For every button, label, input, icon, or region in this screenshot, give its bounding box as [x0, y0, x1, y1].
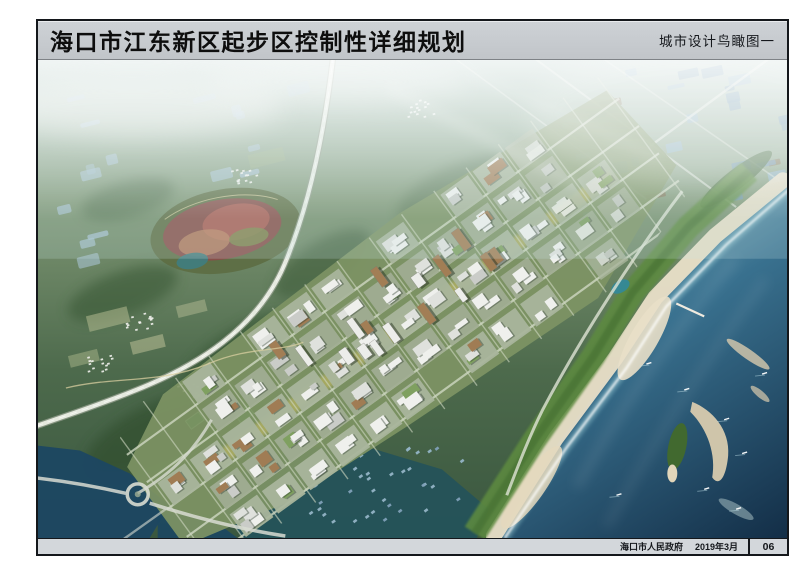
aerial-rendering [38, 60, 787, 538]
header-band: 海口市江东新区起步区控制性详细规划 城市设计鸟瞰图一 [38, 21, 787, 60]
publisher: 海口市人民政府 [620, 540, 683, 553]
page-number: 06 [748, 539, 787, 554]
atmosphere [38, 60, 787, 259]
plan-sheet: 海口市江东新区起步区控制性详细规划 城市设计鸟瞰图一 [36, 19, 789, 556]
aerial-view-svg [38, 60, 787, 538]
sheet-label: 城市设计鸟瞰图一 [659, 30, 775, 50]
publish-date: 2019年3月 [695, 540, 738, 553]
sheet-title: 海口市江东新区起步区控制性详细规划 [50, 23, 467, 57]
footer-band: 海口市人民政府 2019年3月 06 [38, 538, 787, 554]
